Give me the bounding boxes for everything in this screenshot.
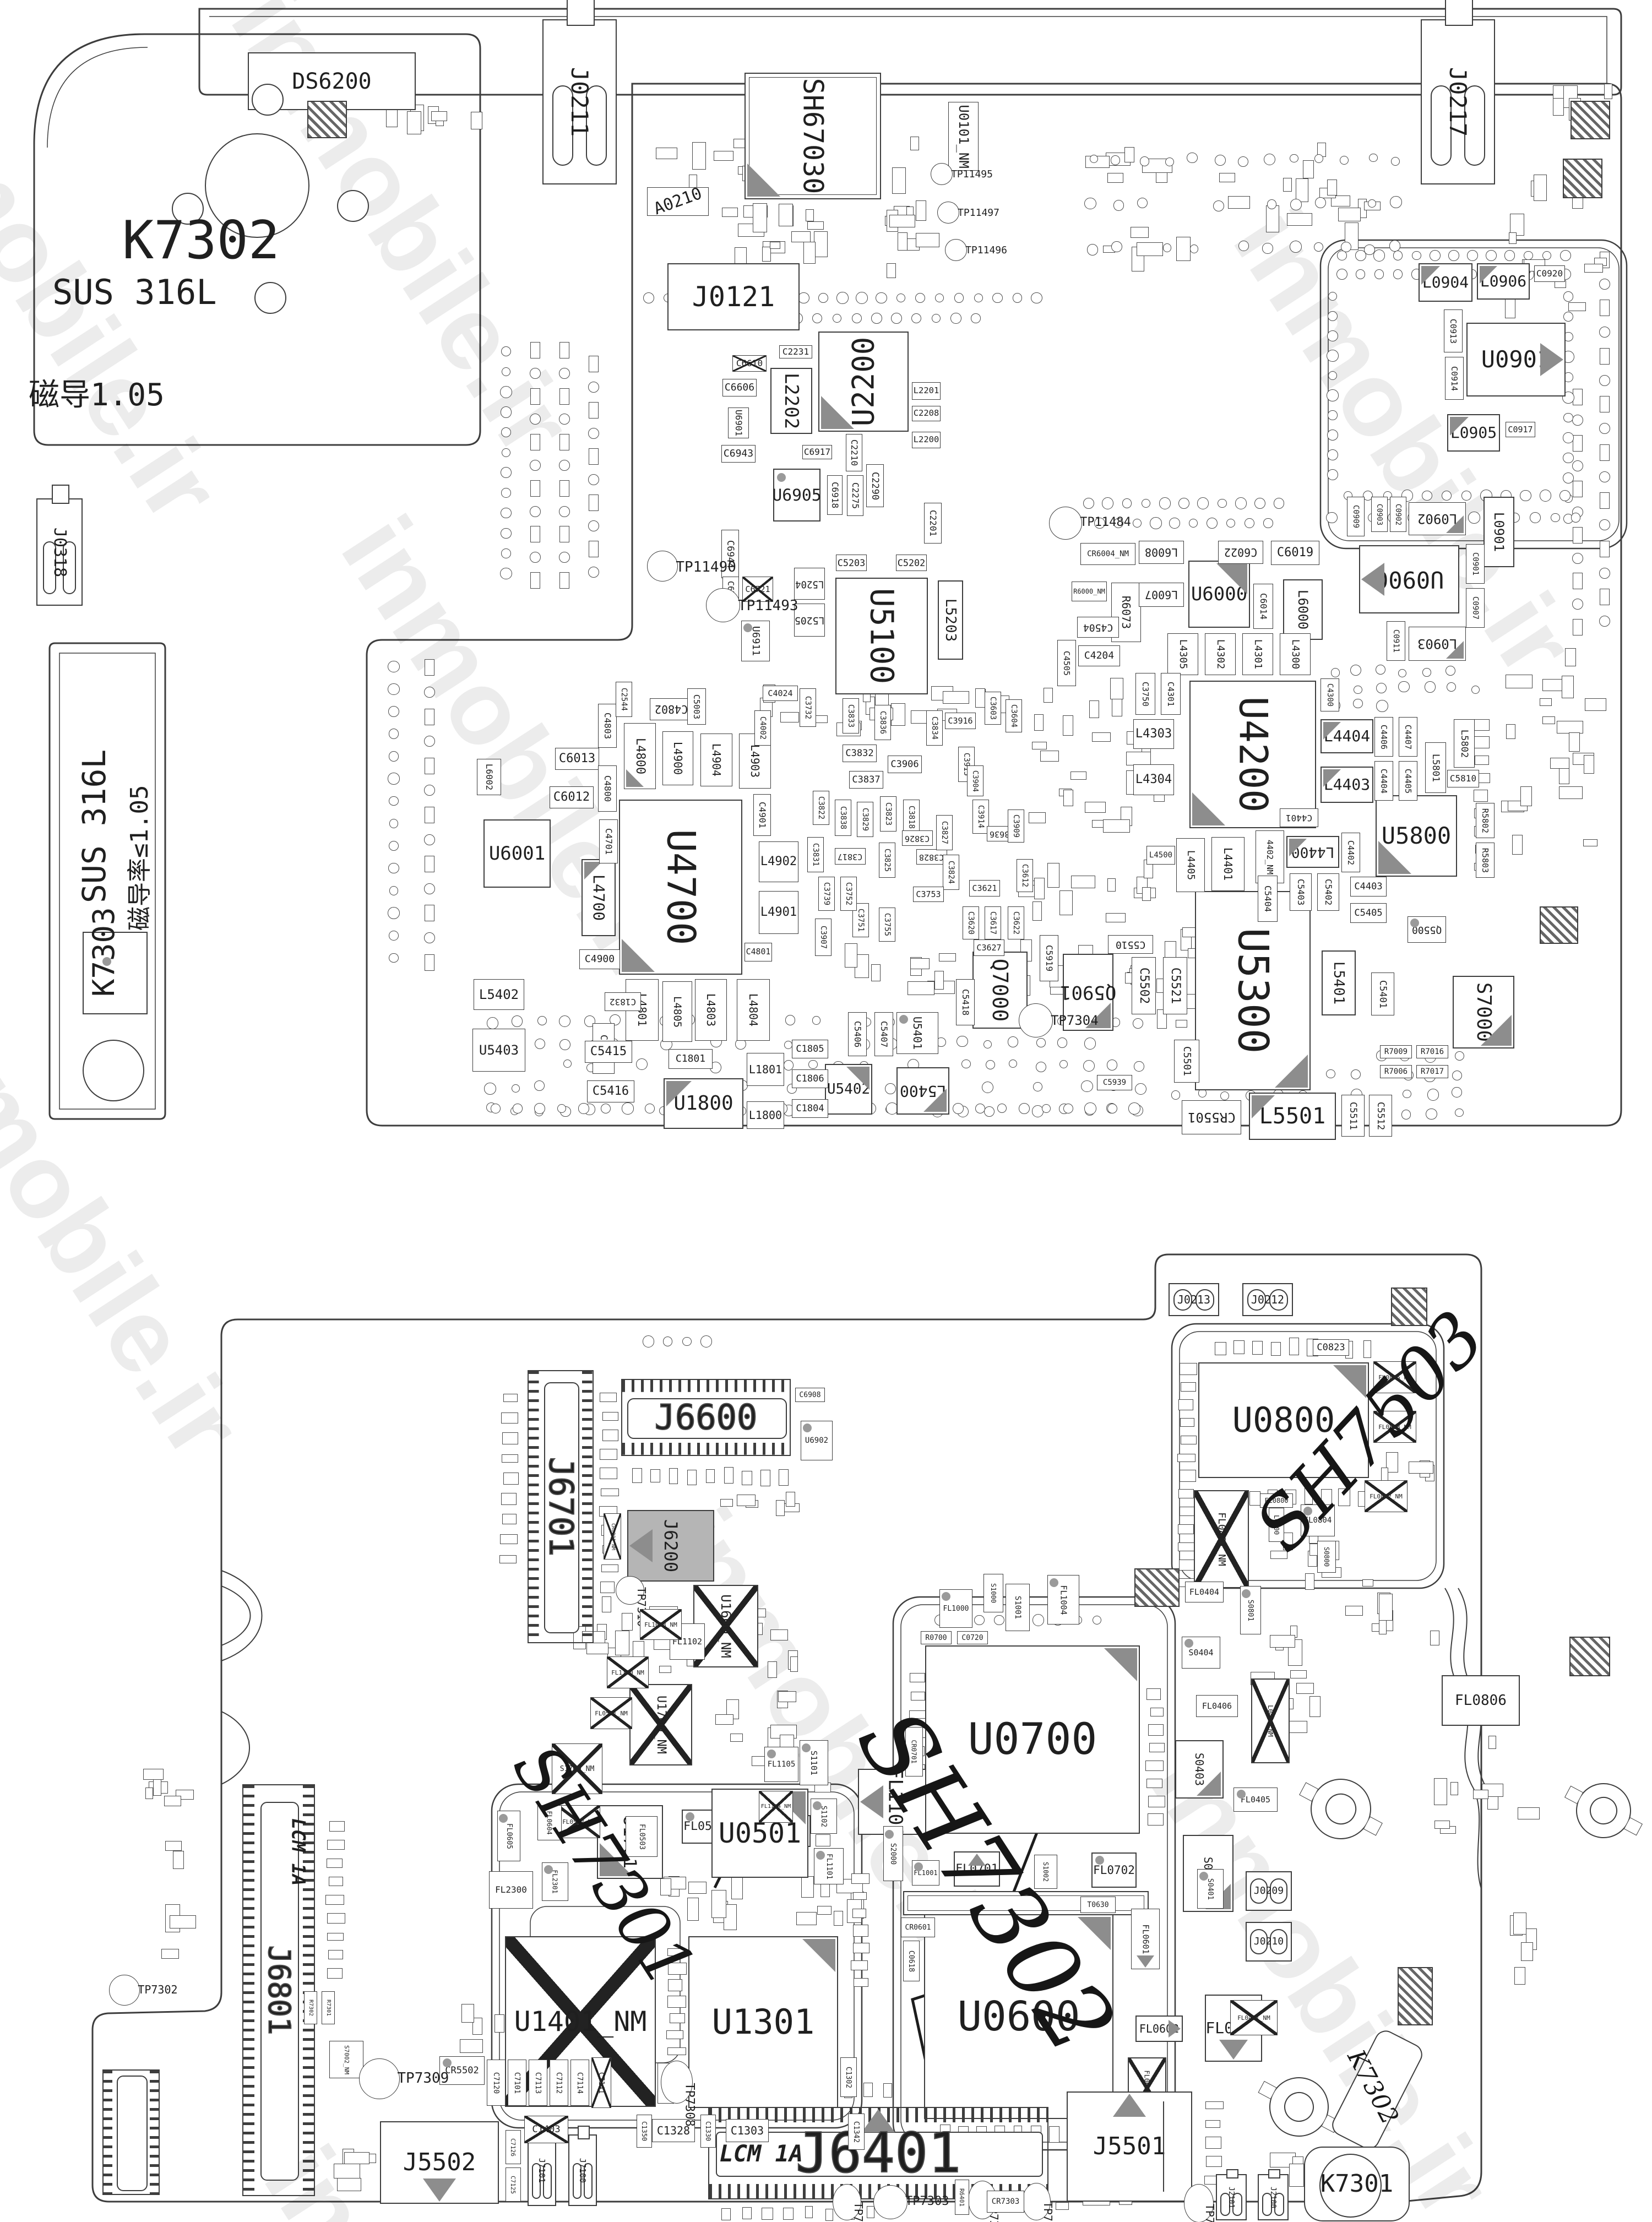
component-l4803: L4803	[695, 979, 727, 1041]
component-pad	[1180, 1363, 1197, 1375]
connector-j0212[interactable]: J0212	[1242, 1283, 1293, 1316]
component-label: L4901	[760, 906, 797, 919]
polarity-dot	[942, 1592, 950, 1601]
component-pad	[1113, 200, 1124, 211]
pin1-marker-icon	[1361, 563, 1384, 596]
component-pad	[1600, 444, 1610, 461]
component-pad	[389, 931, 399, 941]
component-label: C3822	[817, 796, 825, 819]
component-pad	[1542, 716, 1556, 724]
component-pad	[424, 687, 435, 698]
component-label: J6600	[655, 1400, 758, 1435]
pin1-marker-icon	[1113, 2094, 1146, 2117]
connector-sublabel: LCM 1A	[289, 1818, 308, 1886]
testpoint-tp11496[interactable]: TP11496	[945, 239, 967, 261]
component-pad	[424, 736, 435, 747]
component-pad	[1327, 389, 1338, 401]
component-pad	[986, 1060, 995, 1069]
component-pad	[714, 151, 733, 161]
component-pad	[1563, 453, 1574, 464]
testpoint-tp11490[interactable]: TP11490	[647, 551, 678, 582]
component-c0901: C0901	[1466, 544, 1485, 584]
component-pad	[1235, 497, 1247, 509]
component-pad	[632, 1468, 642, 1483]
component-pad	[1220, 1091, 1229, 1100]
component-label: C4901	[758, 802, 767, 828]
component-pad	[1345, 1606, 1363, 1616]
component-label: C5416	[593, 1085, 629, 1098]
polarity-dot	[443, 2058, 452, 2067]
component-pad	[500, 568, 512, 579]
component-pad	[1450, 1782, 1458, 1795]
component-label: C3817	[838, 852, 862, 861]
component-u4700: U4700	[619, 800, 742, 975]
component-label: FL0501_NM	[595, 1710, 628, 1716]
component-pad	[1326, 1069, 1335, 1078]
component-label: C2201	[928, 510, 937, 536]
component-c0913: C0913	[1444, 309, 1463, 352]
component-cluster	[1211, 1338, 1377, 1358]
testpoint-tp7306[interactable]: TP7306	[1022, 2183, 1051, 2220]
component-label: C5512	[1376, 1101, 1385, 1129]
component-pad	[1309, 1696, 1321, 1718]
testpoint-tp7302[interactable]: TP7302	[109, 1975, 140, 2006]
component-pad	[1189, 519, 1198, 528]
component-r7009: R7009	[1380, 1045, 1412, 1058]
component-label: C3818	[907, 806, 915, 829]
component-l0906: L0906	[1477, 263, 1530, 300]
component-c7120: C7120	[487, 2060, 506, 2106]
component-l0902: L0902	[1409, 502, 1466, 535]
component-pad	[1032, 901, 1042, 921]
component-label: C7114	[577, 2072, 584, 2093]
component-c4802: C4802	[650, 698, 693, 720]
component-pad	[327, 1913, 345, 1924]
connector-j6801[interactable]: LCM 1AJ6801	[242, 1784, 315, 2196]
testpoint-tp7307[interactable]: TP7307	[1184, 2184, 1214, 2222]
component-pad	[589, 356, 599, 372]
component-pad	[500, 1534, 518, 1545]
component-label: U6902	[805, 1437, 828, 1444]
component-cluster	[583, 352, 605, 584]
component-u1700_nm: U1700_NM	[629, 1684, 692, 1765]
component-label: C3824	[947, 861, 955, 884]
component-label: FL0404	[1189, 1588, 1219, 1596]
component-label: CR6201_NM	[610, 1523, 615, 1550]
component-label: L5802	[1460, 729, 1469, 757]
component-l6008: L6008	[1139, 541, 1184, 564]
component-c1804: C1804	[792, 1099, 828, 1118]
component-label: C4404	[1380, 768, 1388, 793]
component-cr6201_nm: CR6201_NM	[604, 1513, 621, 1560]
component-c3617: C3617	[985, 906, 1001, 939]
component-j6200: J6200	[627, 1510, 714, 1582]
component-c3622: C3622	[1008, 906, 1024, 939]
component-label: CR7303	[992, 2198, 1020, 2205]
component-label: C5418	[961, 989, 970, 1015]
testpoint-label: TP11490	[676, 560, 736, 574]
component-pad	[600, 1393, 617, 1402]
component-pad	[1572, 553, 1583, 564]
component-label: SH67030	[799, 78, 827, 194]
component-c1805: C1805	[792, 1040, 828, 1058]
component-label: L5204	[795, 579, 824, 588]
component-label: C5501	[1182, 1046, 1192, 1076]
component-c2201: C2201	[924, 503, 942, 544]
component-pad	[512, 1084, 520, 1093]
polarity-dot	[1095, 1856, 1104, 1865]
component-pad	[502, 448, 510, 457]
component-label: R0700	[925, 1634, 947, 1642]
component-pad	[559, 368, 570, 379]
component-l4302: L4302	[1205, 633, 1236, 675]
component-pad	[1600, 589, 1610, 605]
component-pad	[670, 2013, 685, 2023]
component-pad	[935, 294, 944, 303]
component-pad	[1213, 200, 1224, 211]
component-cluster	[1144, 1685, 1166, 1828]
connector-j0213[interactable]: J0213	[1169, 1283, 1219, 1316]
component-pad	[1599, 568, 1610, 579]
component-pad	[1178, 1542, 1195, 1551]
component-pad	[329, 1821, 345, 1832]
component-fl0605: FL0605	[497, 1811, 520, 1861]
component-pad	[724, 1467, 733, 1484]
connector-j2100[interactable]: J2100	[1258, 2174, 1289, 2220]
component-c0911: C0911	[1387, 621, 1405, 661]
component-label: C6013	[559, 753, 595, 765]
component-pad	[1128, 1102, 1140, 1115]
component-pad	[424, 834, 435, 845]
component-l5400: L5400	[896, 1067, 949, 1115]
testpoint-tp11495[interactable]: TP11495	[931, 163, 953, 185]
component-pad	[891, 703, 905, 725]
component-pad	[1354, 686, 1362, 694]
component-l5402: L5402	[474, 979, 524, 1010]
component-label: C7113	[535, 2072, 542, 2093]
component-pad	[1102, 497, 1113, 509]
component-cluster	[324, 1817, 348, 1982]
component-pad	[1328, 292, 1337, 301]
connector-nub	[567, 0, 595, 26]
component-pad	[1505, 298, 1515, 318]
connector-j0217[interactable]: J0217	[1421, 19, 1495, 184]
component-c6943: C6943	[721, 445, 756, 463]
component-pad	[1565, 648, 1576, 666]
component-pad	[682, 1337, 692, 1346]
component-pad	[808, 1060, 818, 1069]
component-label: L1801	[749, 1064, 782, 1075]
component-label: FL1104_NM	[761, 1804, 791, 1810]
component-label: T0630	[1087, 1902, 1108, 1909]
component-r7016: R7016	[1416, 1045, 1448, 1058]
component-pad	[327, 1840, 345, 1849]
hatched-component	[1569, 1637, 1610, 1676]
component-label: C5510	[1116, 939, 1145, 949]
component-c3822: C3822	[813, 791, 829, 825]
component-pad	[1305, 1573, 1314, 1590]
testpoint-tp7305[interactable]: TP7305	[833, 2184, 861, 2220]
component-label: L6008	[1145, 547, 1178, 558]
component-l4401: L4401	[1211, 837, 1245, 891]
component-pad	[143, 1769, 164, 1780]
component-c4024: C4024	[763, 686, 798, 701]
coax-center	[1585, 1792, 1622, 1829]
component-pad	[1445, 666, 1455, 676]
component-pad	[1057, 1037, 1067, 1047]
component-c0909: C0909	[1347, 497, 1365, 536]
component-pad	[760, 1470, 770, 1486]
component-pad	[1571, 513, 1581, 523]
component-pad	[1328, 371, 1338, 381]
testpoint-label: TP7307	[1205, 2204, 1216, 2222]
component-label: L2201	[914, 387, 939, 395]
component-label: CR0601	[905, 1924, 931, 1931]
component-pad	[161, 1949, 179, 1959]
component-label: C2208	[914, 409, 939, 417]
component-pad	[910, 958, 930, 969]
component-pad	[530, 480, 540, 497]
component-pad	[1178, 1524, 1194, 1534]
component-label: CR5501	[1188, 1111, 1236, 1124]
component-pad	[1181, 1382, 1197, 1391]
component-pad	[588, 428, 599, 439]
polarity-dot	[1242, 1589, 1251, 1598]
connector-j0209[interactable]: J0209	[1246, 1871, 1292, 1911]
component-pad	[898, 232, 907, 251]
component-pad	[1215, 155, 1226, 166]
component-pad	[1391, 157, 1400, 166]
component-c3825: C3825	[879, 843, 895, 878]
component-c5407: C5407	[874, 1012, 893, 1056]
component-label: C6917	[804, 448, 830, 457]
component-c3827: C3827	[936, 815, 953, 850]
component-c4401: C4401	[1280, 808, 1318, 827]
component-label: J6701	[544, 1457, 577, 1557]
component-label: C5202	[898, 558, 925, 568]
component-c5203: C5203	[836, 555, 867, 571]
component-label: J0212	[1251, 1294, 1284, 1305]
component-u0101_nm: U0101_NM	[948, 102, 979, 171]
component-pad	[1290, 241, 1302, 253]
testpoint-tp7309[interactable]: TP7309	[359, 2058, 400, 2099]
component-pad	[1274, 498, 1284, 508]
component-pad	[791, 231, 810, 242]
component-l4303: L4303	[1133, 719, 1174, 749]
component-label: FL0806	[1455, 1693, 1507, 1708]
component-c4505: C4505	[1057, 640, 1076, 686]
component-pad	[530, 342, 540, 358]
testpoint-label: TP7309	[397, 2071, 449, 2085]
component-c4301: C4301	[1161, 673, 1181, 715]
component-pad	[145, 1788, 153, 1799]
component-pad	[851, 1873, 870, 1884]
component-label: L1800	[749, 1110, 782, 1121]
component-pad	[1032, 1614, 1045, 1626]
component-u6901: U6901	[728, 408, 749, 438]
connector-j0318[interactable]: J0318	[36, 498, 83, 606]
component-label: C4403	[1354, 882, 1382, 892]
coax-center	[1320, 1789, 1362, 1830]
component-label: C3826	[905, 834, 930, 843]
component-pad	[1514, 1967, 1525, 1985]
component-pad	[173, 1851, 184, 1869]
component-label: C0907	[1471, 596, 1479, 620]
component-label: J6401	[795, 2126, 961, 2181]
connector-j0211[interactable]: J0211	[542, 19, 617, 184]
component-label: C1328	[657, 2125, 690, 2136]
component-c3604: C3604	[1006, 699, 1022, 732]
component-label: L6002	[485, 764, 493, 790]
component-label: C4505	[1063, 650, 1071, 675]
connector-j7101[interactable]: J7101	[528, 2134, 556, 2206]
component-c6012: C6012	[550, 786, 594, 808]
component-r7017: R7017	[1416, 1065, 1448, 1078]
testpoint-label: TP7305	[853, 2202, 864, 2222]
component-c3909: C3909	[1008, 810, 1024, 843]
component-label: J5502	[403, 2150, 476, 2175]
hatched-component	[1134, 1568, 1180, 1607]
component-sh67030: SH67030	[745, 73, 881, 199]
connector-j7100[interactable]: J7100	[568, 2134, 597, 2206]
component-pad	[910, 1673, 925, 1682]
component-pad	[911, 313, 921, 323]
mount-hole	[254, 282, 286, 314]
component-label: L2200	[914, 436, 939, 444]
component-l4301: L4301	[1242, 633, 1273, 675]
component-l1800: L1800	[747, 1101, 784, 1129]
component-label: L4405	[1186, 850, 1195, 880]
component-label: FL1100_NM	[611, 1670, 644, 1676]
component-pad	[501, 346, 511, 356]
component-pad	[1289, 1338, 1299, 1355]
component-label: CR6004_NM	[1087, 550, 1129, 558]
component-pad	[1111, 155, 1121, 165]
component-label: C6918	[830, 482, 839, 508]
component-pad	[796, 1912, 817, 1925]
component-r6401: R6401	[955, 2180, 969, 2215]
component-pad	[1393, 269, 1403, 279]
component-pad	[983, 1040, 992, 1048]
component-pad	[601, 1564, 619, 1572]
component-label: C7141	[598, 2072, 605, 2093]
testpoint-tp7308[interactable]: TP7308	[661, 2061, 693, 2104]
component-c3838: C3838	[835, 800, 851, 836]
testpoint-tp7310[interactable]: TP7310	[616, 1576, 644, 1605]
component-pad	[1133, 1018, 1143, 1029]
component-c7126: C7126	[506, 2130, 521, 2164]
component-pad	[1252, 1341, 1263, 1355]
component-label: C3620	[967, 911, 975, 935]
component-r7302: R7302	[304, 1991, 317, 2024]
component-label: L4304	[1135, 774, 1172, 786]
component-pad	[1107, 878, 1116, 892]
component-c5521: C5521	[1163, 957, 1187, 1014]
component-c3753: C3753	[913, 887, 944, 902]
component-label: L4303	[1135, 728, 1172, 740]
component-pad	[876, 292, 887, 304]
component-cr0601: CR0601	[901, 1917, 935, 1937]
component-pad	[1314, 154, 1323, 163]
component-pad	[916, 200, 926, 221]
component-label: S0401	[1207, 1878, 1214, 1899]
component-c4002: C4002	[754, 710, 771, 746]
component-pad	[784, 1060, 794, 1071]
testpoint-tp7303[interactable]: TP7303	[873, 2185, 907, 2219]
pin1-marker-icon	[1216, 563, 1247, 594]
component-l4404: L4404	[1320, 719, 1373, 753]
board-text: K7303	[89, 907, 119, 997]
hatched-component	[1571, 101, 1610, 139]
component-c3832: C3832	[843, 745, 877, 762]
component-label: C5810	[1450, 774, 1476, 783]
component-pad	[327, 1968, 343, 1979]
connector-pins[interactable]	[102, 2069, 160, 2195]
pin1-marker-icon	[747, 164, 780, 197]
component-pad	[854, 1978, 868, 1987]
component-label: C6019	[1277, 547, 1313, 559]
hatched-component	[307, 101, 347, 138]
component-label: L4305	[1178, 639, 1188, 669]
connector-j6701[interactable]: J6701	[528, 1370, 594, 1643]
component-r7006: R7006	[1380, 1065, 1412, 1078]
component-c1330: C1330	[700, 2115, 716, 2148]
component-pad	[589, 541, 599, 557]
component-pad	[1327, 449, 1338, 460]
component-pad	[845, 943, 857, 968]
component-label: C7120	[493, 2072, 500, 2093]
testpoint-tp11497[interactable]: TP11497	[937, 202, 959, 224]
hatched-component	[1398, 1967, 1433, 2025]
component-l4901: L4901	[759, 891, 798, 934]
component-cluster	[524, 339, 546, 592]
connector-nub	[1226, 2169, 1239, 2178]
component-label: C4803	[603, 713, 612, 739]
component-label: U0700	[968, 1718, 1097, 1761]
connector-j6600[interactable]: J6600	[621, 1379, 791, 1456]
component-pad	[1205, 2120, 1221, 2128]
component-pad	[974, 1615, 985, 1626]
component-u2200: U2200	[818, 332, 909, 432]
component-c3612: C3612	[1017, 859, 1033, 892]
component-pad	[1572, 599, 1583, 610]
component-label: C0917	[1508, 426, 1533, 434]
component-pad	[1520, 490, 1531, 502]
component-pad	[1142, 499, 1150, 508]
connector-j2101[interactable]: J2101	[1216, 2174, 1247, 2220]
component-pad	[856, 292, 868, 304]
component-pad	[867, 2206, 874, 2218]
component-pad	[424, 785, 435, 796]
testpoint-tp7304[interactable]: TP7304	[1019, 1003, 1053, 1037]
connector-j0210[interactable]: J0210	[1246, 1922, 1292, 1962]
component-u5800: U5800	[1376, 795, 1457, 877]
component-pad	[785, 1015, 795, 1025]
component-pad	[559, 1039, 570, 1050]
component-pad	[1163, 243, 1172, 252]
component-label: C5406	[853, 1021, 862, 1047]
testpoint-tp11484[interactable]: TP11484	[1049, 507, 1082, 540]
component-pad	[1008, 1036, 1019, 1047]
component-pad	[975, 688, 985, 707]
pin1-marker-icon	[1540, 343, 1563, 376]
component-pad	[502, 1514, 516, 1524]
component-c7125: C7125	[506, 2167, 521, 2202]
testpoint-tp11493[interactable]: TP11493	[706, 588, 740, 622]
component-pad	[1434, 1778, 1448, 1805]
component-pad	[501, 406, 512, 418]
component-c4701: C4701	[599, 819, 618, 863]
